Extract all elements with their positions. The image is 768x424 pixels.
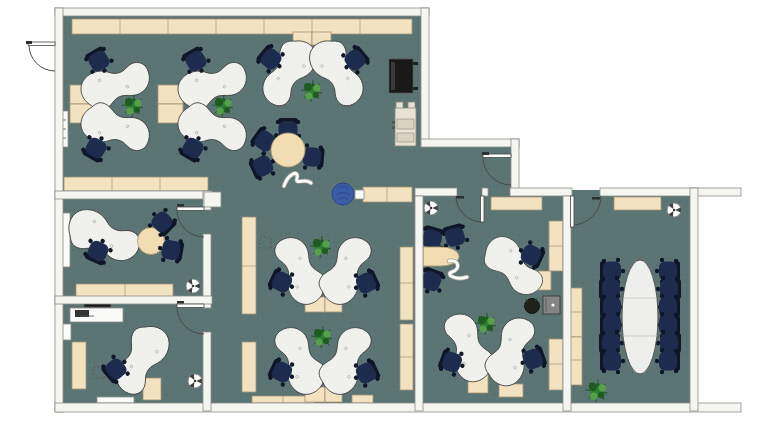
fan <box>188 374 202 389</box>
round-table <box>271 133 305 167</box>
fan <box>424 201 438 216</box>
pillar <box>204 192 221 207</box>
side-cube <box>355 190 364 199</box>
window-sill <box>97 397 134 403</box>
floor-plan-canvas <box>0 0 768 424</box>
entrance-door <box>26 41 55 71</box>
copier <box>392 102 416 146</box>
fan <box>186 279 200 294</box>
floor-plan <box>0 0 768 424</box>
conference-table <box>622 260 658 374</box>
fan <box>667 203 681 218</box>
pouf <box>332 183 354 205</box>
